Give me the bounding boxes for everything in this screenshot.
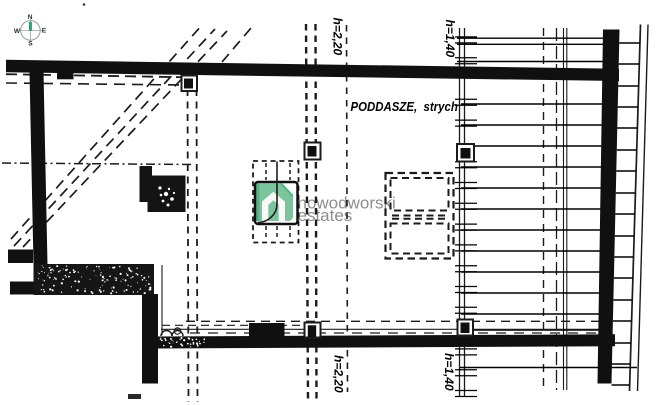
svg-text:h=2,20: h=2,20 <box>331 18 345 56</box>
svg-text:h=1,40: h=1,40 <box>443 20 457 58</box>
svg-text:N: N <box>28 14 33 21</box>
svg-text:S: S <box>28 41 33 48</box>
svg-text:h=1,40: h=1,40 <box>442 353 456 391</box>
svg-text:estates: estates <box>298 206 353 225</box>
svg-text:h=2,20: h=2,20 <box>332 355 346 393</box>
svg-text:E: E <box>42 27 47 34</box>
svg-text:PODDASZE, strych: PODDASZE, strych <box>351 99 458 114</box>
svg-text:W: W <box>14 28 21 35</box>
